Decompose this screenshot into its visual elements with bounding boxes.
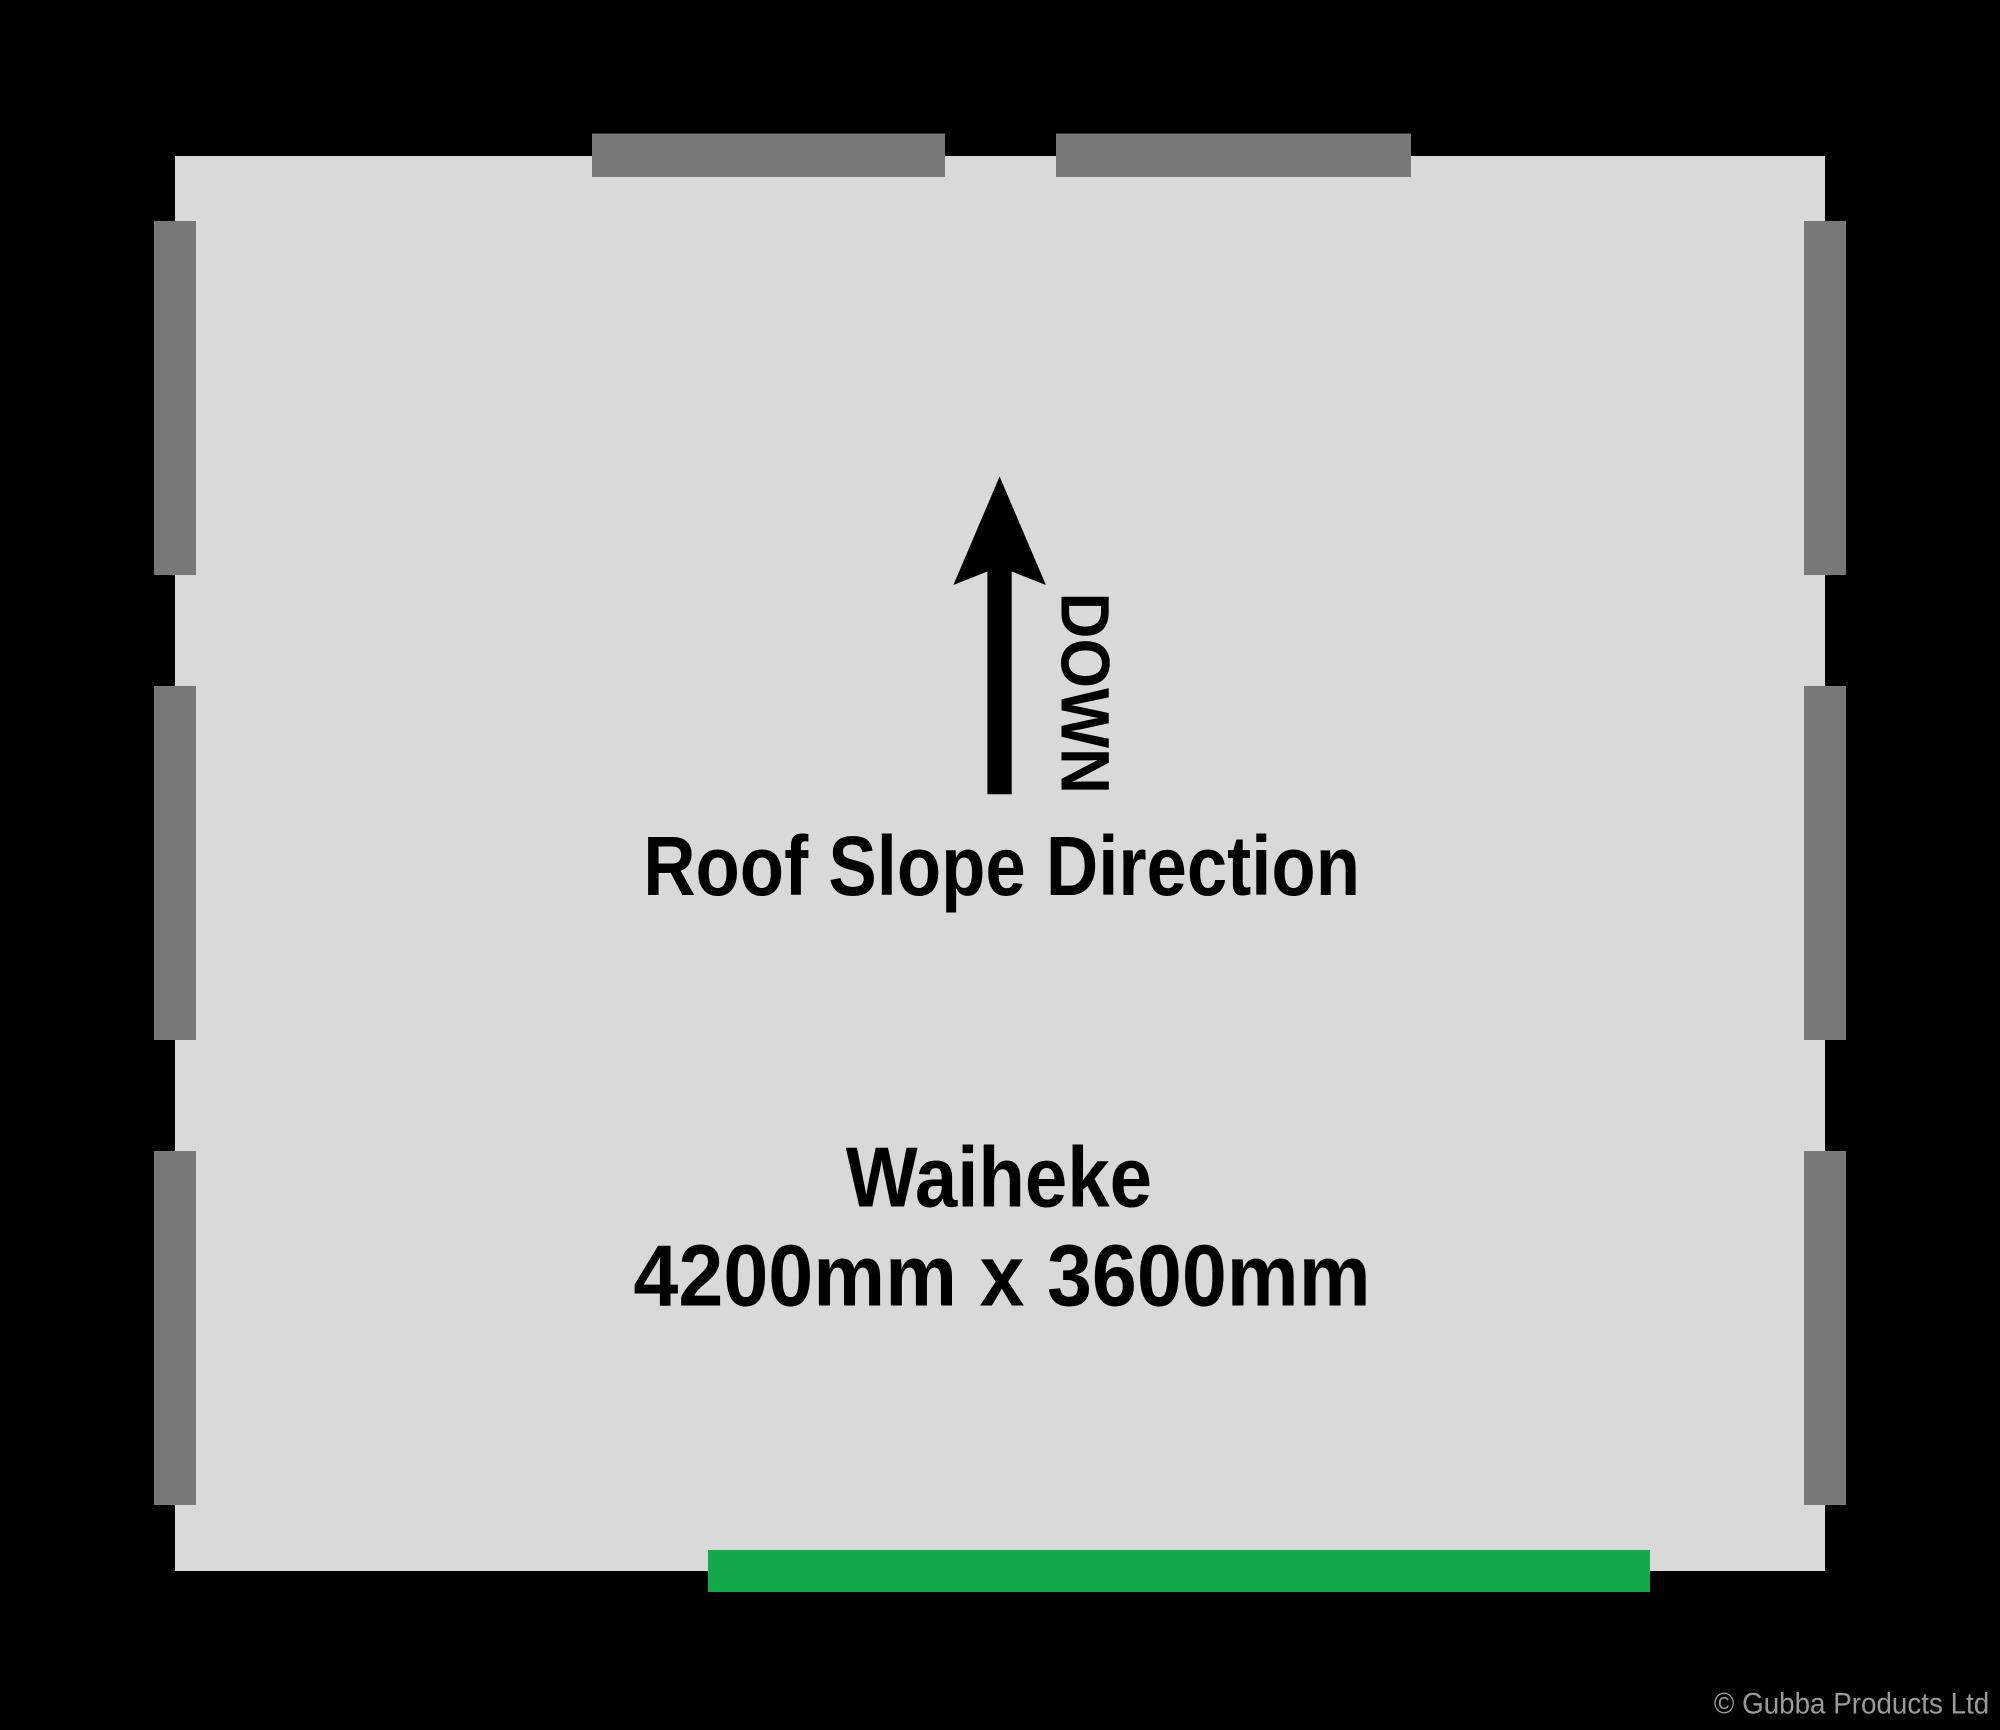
svg-text:© Gubba Products Ltd: © Gubba Products Ltd [1714,1688,1989,1721]
svg-text:Waiheke: Waiheke [846,1131,1152,1226]
svg-text:4200mm x 3600mm: 4200mm x 3600mm [633,1227,1370,1325]
svg-text:DOWN: DOWN [1047,593,1124,795]
svg-text:Roof Slope Direction: Roof Slope Direction [643,819,1360,913]
